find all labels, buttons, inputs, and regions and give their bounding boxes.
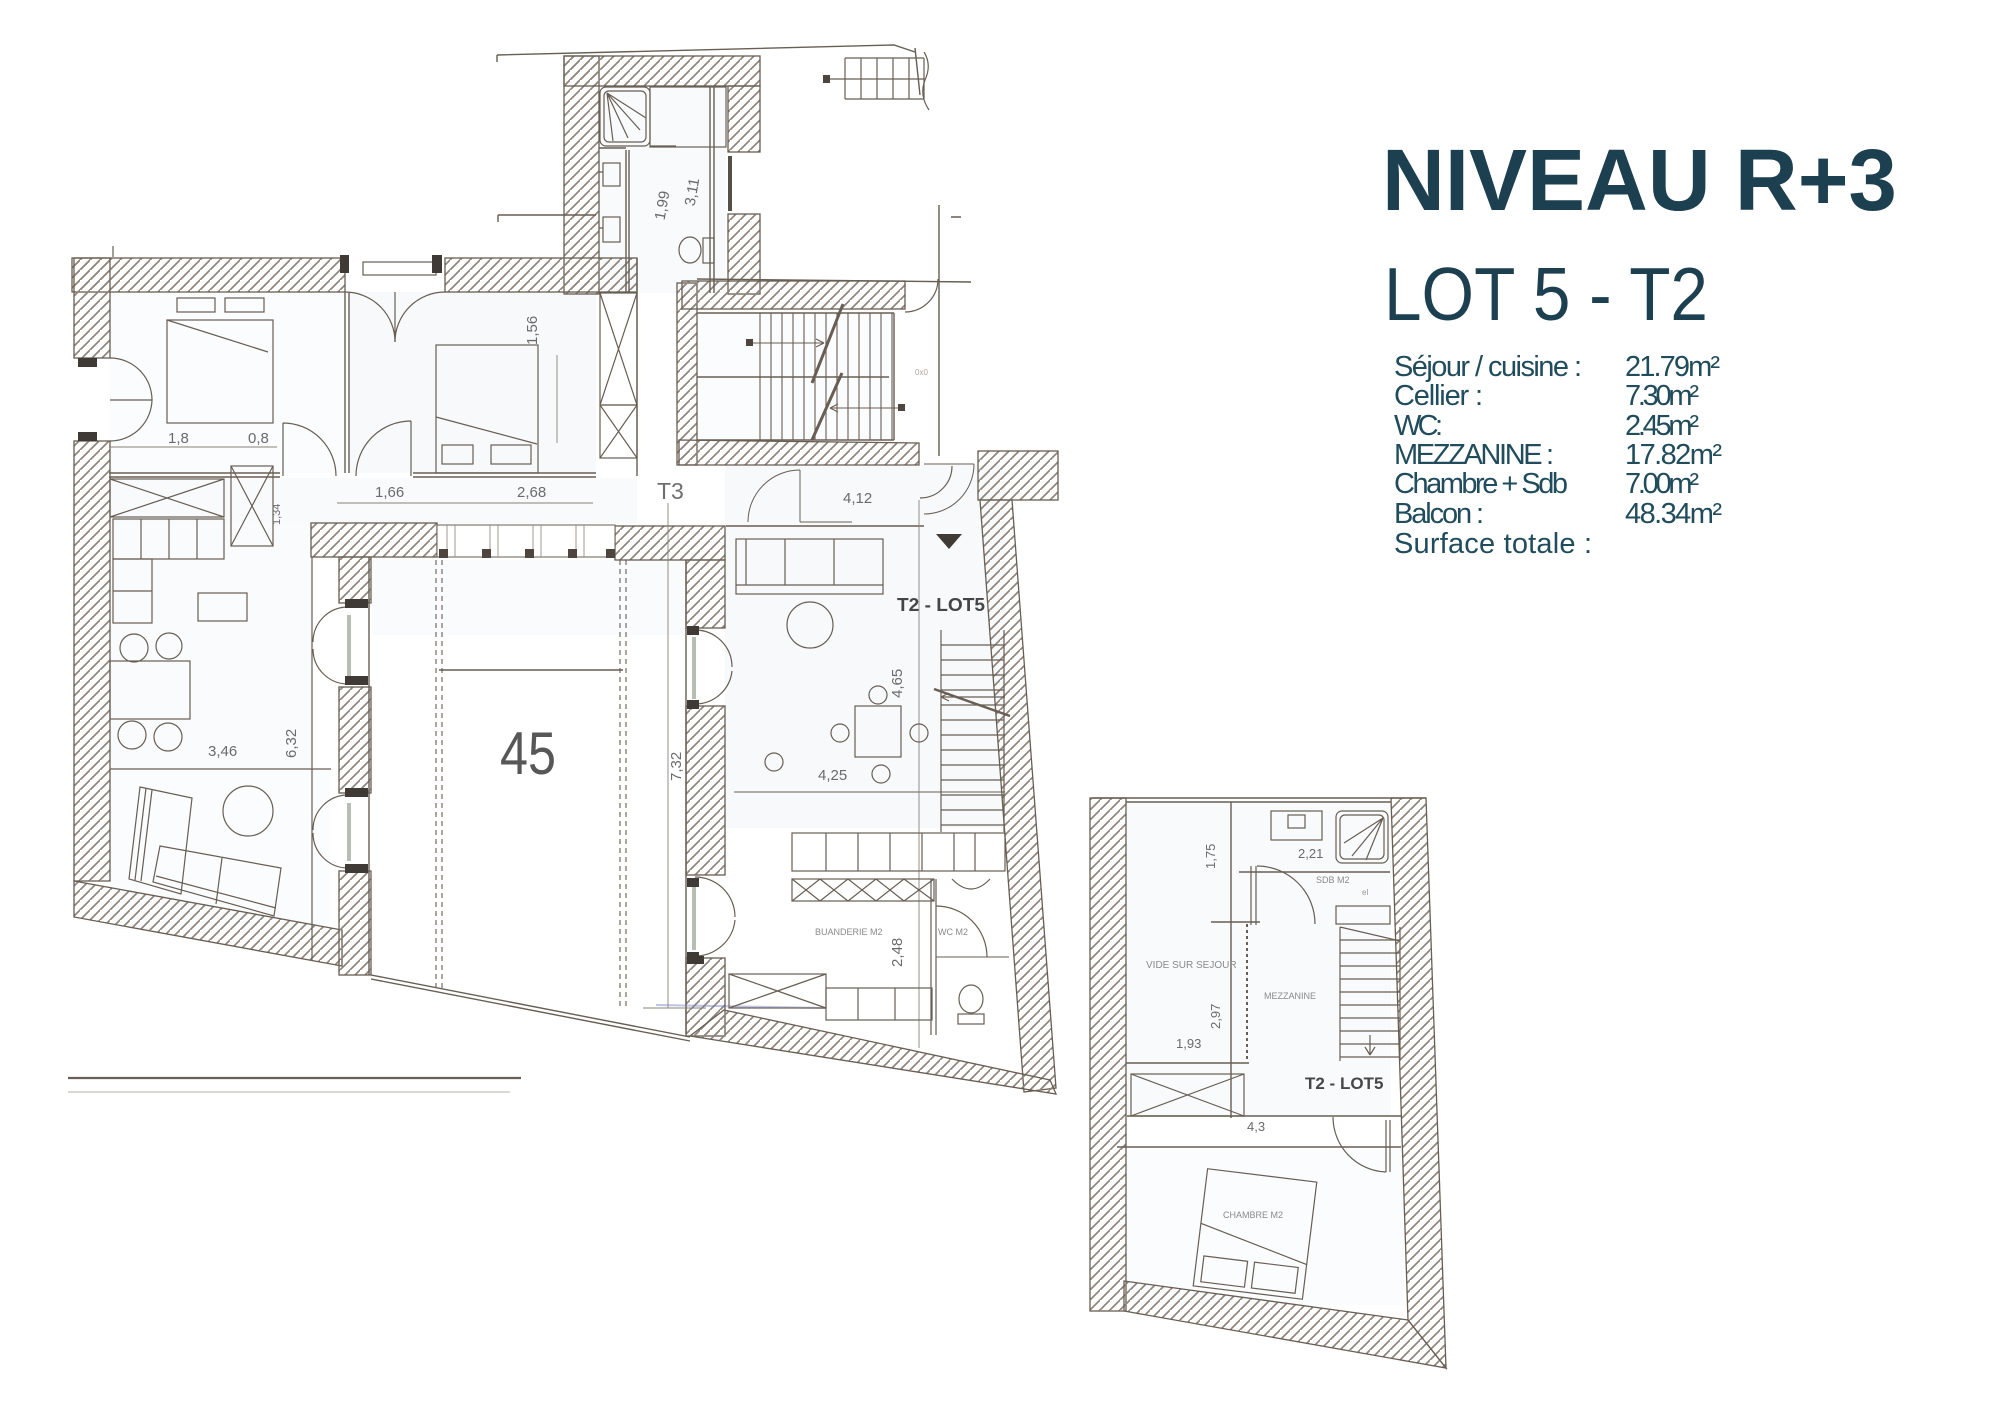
svg-text:1,66: 1,66 (375, 484, 404, 501)
svg-text:0,8: 0,8 (248, 430, 269, 447)
svg-text:VIDE SUR SEJOUR: VIDE SUR SEJOUR (1146, 960, 1237, 971)
svg-text:2,48: 2,48 (889, 938, 906, 967)
svg-text:4,3: 4,3 (1247, 1119, 1265, 1134)
svg-text:1,34: 1,34 (271, 504, 283, 525)
svg-text:4,12: 4,12 (843, 490, 872, 507)
svg-text:CHAMBRE M2: CHAMBRE M2 (1223, 1210, 1283, 1220)
svg-text:21.79m²: 21.79m² (1625, 351, 1720, 383)
svg-text:48.34m²: 48.34m² (1625, 498, 1722, 530)
svg-text:Balcon :: Balcon : (1394, 498, 1484, 530)
svg-text:WC:: WC: (1394, 410, 1443, 442)
svg-text:7.00m²: 7.00m² (1625, 468, 1699, 500)
svg-text:0x0: 0x0 (915, 368, 928, 377)
svg-text:T2 - LOT5: T2 - LOT5 (1305, 1074, 1383, 1093)
svg-text:WC M2: WC M2 (938, 927, 968, 937)
svg-text:el: el (1362, 888, 1368, 897)
svg-text:LOT 5 - T2: LOT 5 - T2 (1384, 252, 1708, 336)
svg-text:7.30m²: 7.30m² (1625, 380, 1699, 412)
svg-text:2.45m²: 2.45m² (1625, 410, 1699, 442)
svg-text:1,56: 1,56 (524, 316, 541, 345)
svg-text:Surface totale :: Surface totale : (1394, 528, 1592, 560)
svg-text:SDB M2: SDB M2 (1316, 875, 1350, 885)
svg-text:1,93: 1,93 (1176, 1036, 1201, 1051)
svg-text:1,8: 1,8 (168, 430, 189, 447)
svg-text:Séjour / cuisine :: Séjour / cuisine : (1394, 351, 1582, 383)
svg-text:1,75: 1,75 (1203, 844, 1218, 869)
svg-text:45: 45 (500, 720, 556, 787)
svg-text:17.82m²: 17.82m² (1625, 439, 1722, 471)
svg-text:6,32: 6,32 (283, 729, 300, 758)
svg-text:MEZZANINE: MEZZANINE (1264, 991, 1316, 1001)
svg-text:2,21: 2,21 (1298, 846, 1323, 861)
svg-text:4,65: 4,65 (889, 669, 906, 698)
svg-text:NIVEAU R+3: NIVEAU R+3 (1382, 132, 1897, 229)
svg-text:Chambre + Sdb: Chambre + Sdb (1394, 468, 1568, 500)
svg-text:MEZZANINE :: MEZZANINE : (1394, 439, 1554, 471)
svg-text:4,25: 4,25 (818, 767, 847, 784)
svg-text:2,97: 2,97 (1208, 1004, 1223, 1029)
svg-text:BUANDERIE M2: BUANDERIE M2 (815, 927, 883, 937)
svg-text:T2 - LOT5: T2 - LOT5 (897, 595, 985, 615)
svg-text:7,32: 7,32 (668, 752, 685, 781)
svg-text:T3: T3 (657, 478, 684, 504)
svg-text:2,68: 2,68 (517, 484, 546, 501)
svg-text:Cellier :: Cellier : (1394, 380, 1483, 412)
svg-text:3,46: 3,46 (208, 743, 237, 760)
